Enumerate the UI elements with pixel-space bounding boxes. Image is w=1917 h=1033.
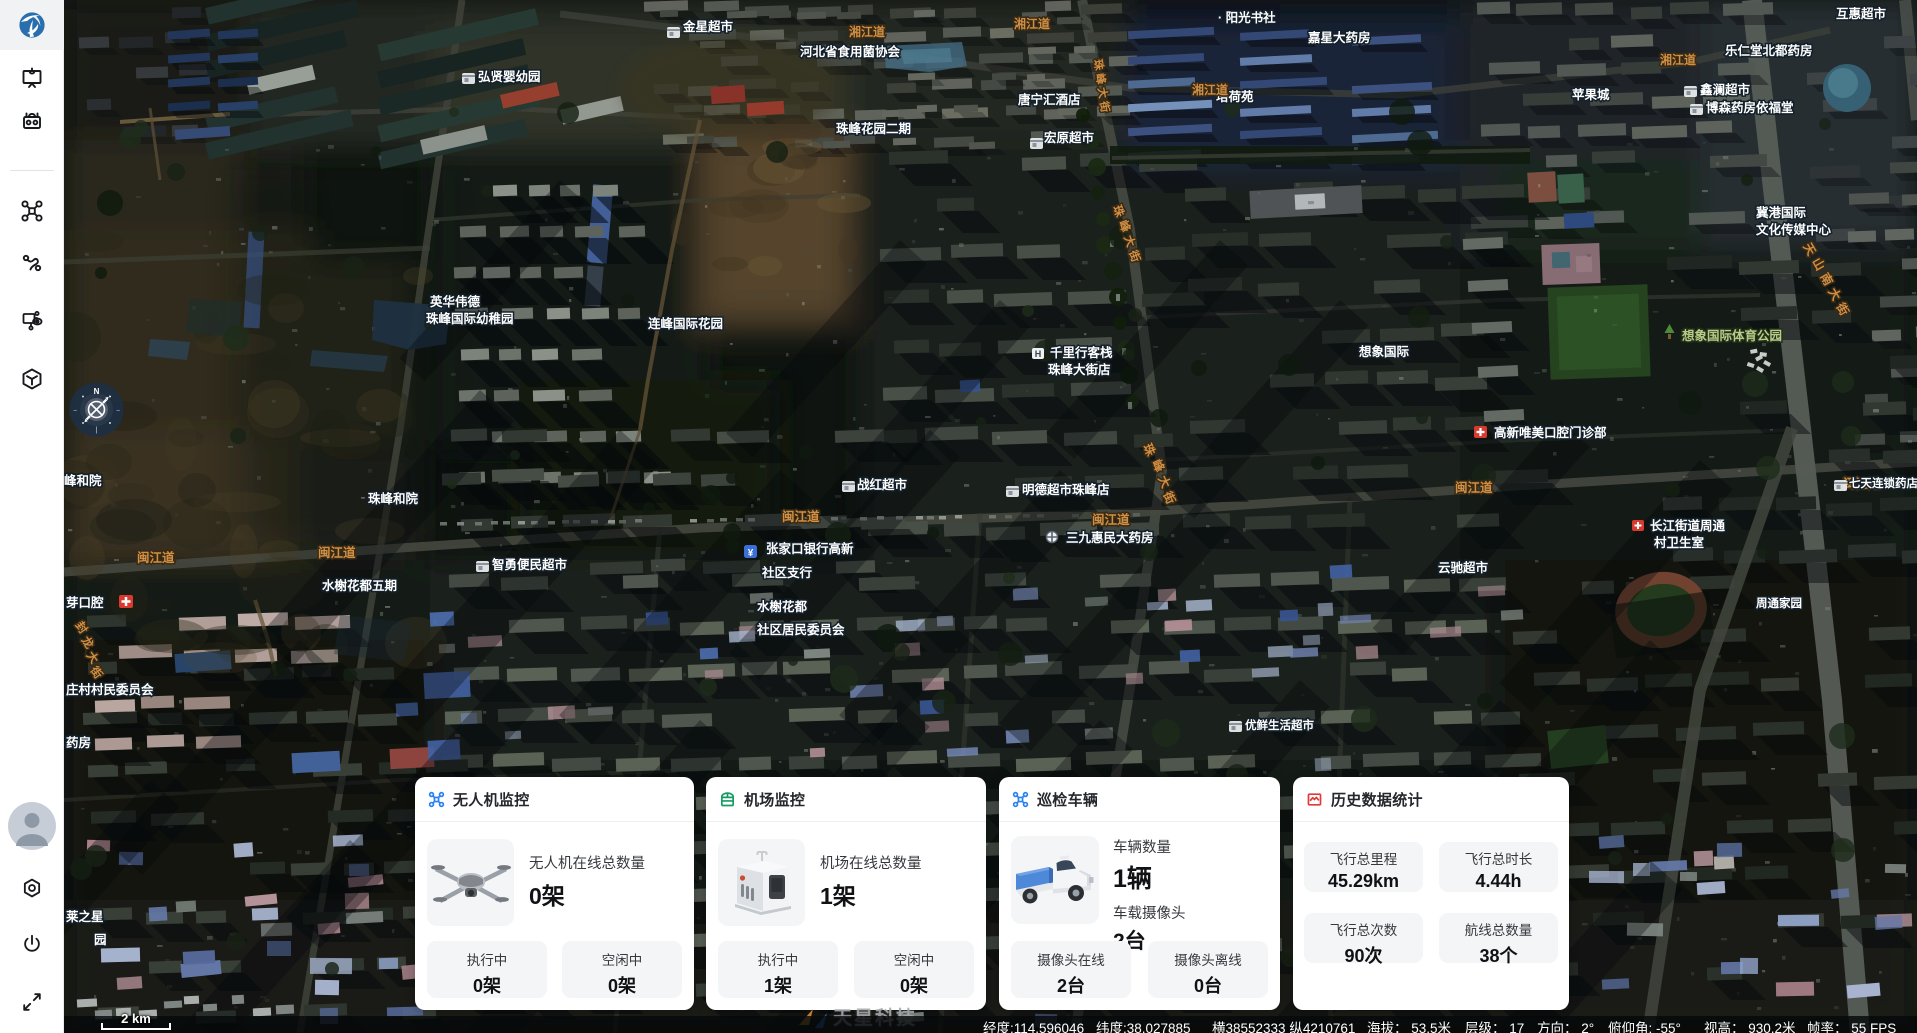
svg-text:博森药房依福堂: 博森药房依福堂	[1706, 100, 1794, 115]
svg-text:社区居民委员会: 社区居民委员会	[756, 622, 845, 637]
svg-text:周通家园: 周通家园	[1756, 596, 1802, 610]
svg-text:张家口银行高新: 张家口银行高新	[766, 541, 854, 556]
svg-text:湘江道: 湘江道	[1014, 16, 1050, 31]
svg-text:想象国际体育公园: 想象国际体育公园	[1681, 328, 1782, 343]
svg-text:嘉星大药房: 嘉星大药房	[1307, 30, 1371, 45]
svg-text:高新唯美口腔门诊部: 高新唯美口腔门诊部	[1494, 425, 1607, 440]
svg-text:¥: ¥	[748, 548, 754, 559]
svg-text:金星超市: 金星超市	[682, 19, 734, 34]
svg-text:互惠超市: 互惠超市	[1836, 6, 1887, 21]
svg-text:河北省食用菌协会: 河北省食用菌协会	[800, 44, 901, 59]
svg-text:优鲜生活超市: 优鲜生活超市	[1245, 718, 1314, 732]
svg-text:莱之星: 莱之星	[66, 909, 104, 924]
svg-text:弘贤婴幼园: 弘贤婴幼园	[478, 69, 541, 84]
svg-text:乐仁堂北都药房: 乐仁堂北都药房	[1725, 43, 1813, 58]
svg-text:湘江道: 湘江道	[849, 24, 885, 39]
svg-text:文化传媒中心: 文化传媒中心	[1756, 222, 1832, 237]
svg-text:珠峰国际幼稚园: 珠峰国际幼稚园	[426, 311, 514, 326]
svg-text:水榭花都: 水榭花都	[757, 599, 808, 614]
svg-text:想象国际: 想象国际	[1358, 344, 1410, 359]
svg-text:珠峰和院: 珠峰和院	[368, 491, 419, 506]
svg-text:英华伟德: 英华伟德	[430, 294, 481, 309]
svg-text:药房: 药房	[66, 735, 91, 750]
svg-text:闽江道: 闽江道	[318, 545, 356, 560]
svg-text:珠峰花园二期: 珠峰花园二期	[836, 121, 911, 136]
svg-text:· 阳光书社: · 阳光书社	[1218, 10, 1276, 25]
svg-text:智勇便民超市: 智勇便民超市	[491, 557, 568, 572]
svg-text:−: −	[73, 408, 77, 415]
svg-text:长江街道周通: 长江街道周通	[1650, 518, 1726, 533]
svg-text:社区支行: 社区支行	[761, 565, 813, 580]
svg-text:芽口腔: 芽口腔	[66, 595, 104, 610]
svg-text:闽江道: 闽江道	[782, 509, 820, 524]
svg-text:唐宁汇酒店: 唐宁汇酒店	[1018, 92, 1081, 107]
svg-text:千里行客栈: 千里行客栈	[1050, 345, 1113, 360]
svg-text:闽江道: 闽江道	[137, 550, 175, 565]
svg-text:H: H	[1035, 349, 1042, 359]
svg-text:珠峰大街店: 珠峰大街店	[1048, 362, 1111, 377]
svg-text:湘江道: 湘江道	[1660, 52, 1696, 67]
svg-text:连峰国际花园: 连峰国际花园	[648, 316, 723, 331]
svg-text:湘江道: 湘江道	[1192, 82, 1228, 97]
svg-text:园: 园	[94, 933, 107, 947]
svg-text:−: −	[116, 408, 120, 415]
svg-text:村卫生室: 村卫生室	[1654, 535, 1705, 550]
svg-text:N: N	[94, 387, 100, 396]
svg-text:峰和院: 峰和院	[64, 473, 102, 488]
svg-text:明德超市珠峰店: 明德超市珠峰店	[1022, 482, 1110, 497]
svg-text:宏原超市: 宏原超市	[1044, 130, 1095, 145]
svg-text:|: |	[96, 427, 98, 434]
svg-text:水榭花都五期: 水榭花都五期	[322, 578, 397, 593]
svg-text:冀港国际: 冀港国际	[1756, 205, 1807, 220]
svg-text:战红超市: 战红超市	[857, 477, 908, 492]
svg-text:庄村村民委员会: 庄村村民委员会	[66, 682, 154, 697]
svg-text:七天连锁药店: 七天连锁药店	[1849, 476, 1917, 490]
svg-text:闽江道: 闽江道	[1092, 512, 1130, 527]
svg-text:苹果城: 苹果城	[1572, 87, 1610, 102]
svg-text:鑫澜超市: 鑫澜超市	[1699, 82, 1751, 97]
svg-text:三九惠民大药房: 三九惠民大药房	[1066, 530, 1154, 545]
svg-text:闽江道: 闽江道	[1455, 480, 1493, 495]
svg-text:云驰超市: 云驰超市	[1438, 560, 1489, 575]
